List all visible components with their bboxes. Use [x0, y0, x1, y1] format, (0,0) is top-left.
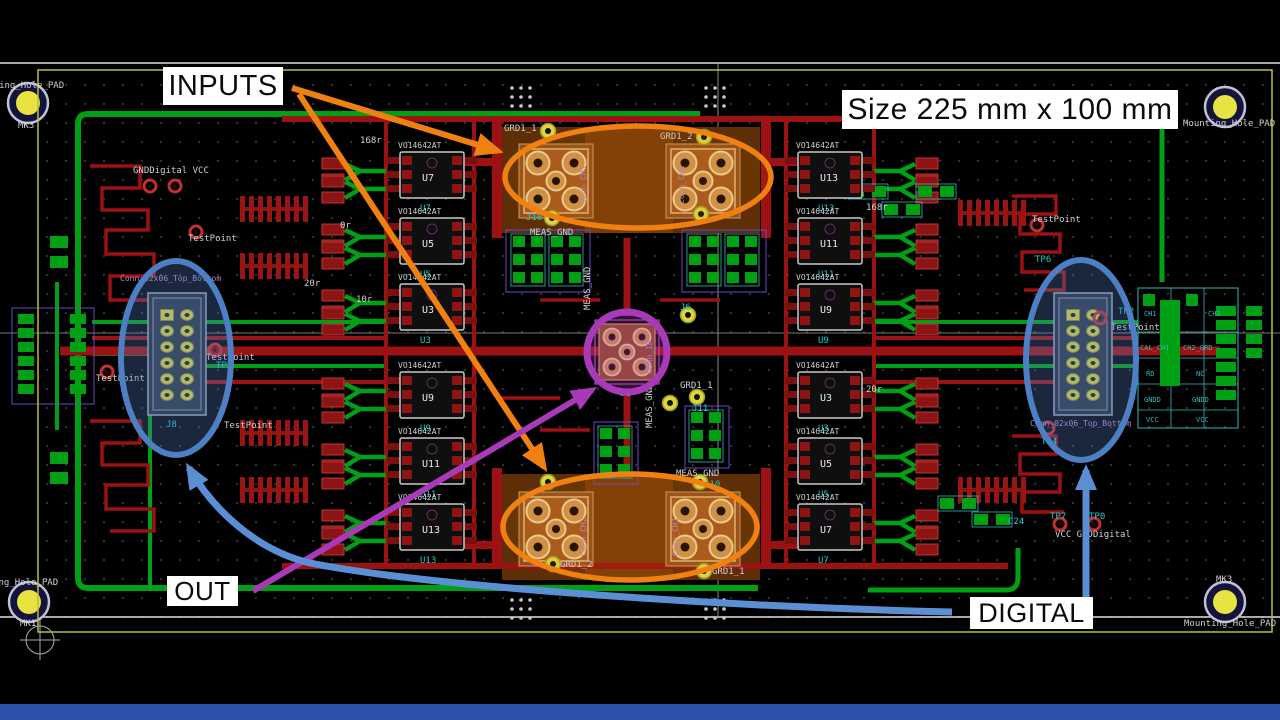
mount-label-tl: Mounting_Hole_PAD — [0, 81, 64, 91]
rb-r5c1: VCC — [1146, 416, 1159, 424]
annotation-label-inputs: INPUTS — [163, 67, 283, 105]
ic-part: VO14642AT — [796, 207, 840, 216]
value-2: 0r — [340, 221, 351, 231]
mount-ref-br: MK3 — [1216, 575, 1232, 585]
ic-part: VO14642AT — [796, 493, 840, 502]
ic-part: VO14642AT — [796, 361, 840, 370]
j6-ref: J6 — [680, 303, 691, 313]
ic-part: VO14642AT — [398, 427, 442, 436]
digital-highlight-ellipse-right — [1026, 260, 1136, 460]
mount-ref-tl: MK3 — [18, 121, 34, 131]
tp0-ref: TP0 — [1089, 512, 1105, 522]
ic-ref: U3 — [422, 305, 434, 316]
rb-r1c2: CH2 — [1208, 310, 1221, 318]
annotation-label-out: OUT — [167, 576, 238, 606]
mounting-hole-bottom-left — [9, 582, 49, 622]
mount-label-br: Mounting_Hole_PAD — [1184, 619, 1276, 629]
ic-ref: U7 — [422, 173, 434, 184]
mounting-hole-bottom-right — [1205, 582, 1245, 622]
tp7-ref: TP7 — [1050, 512, 1066, 522]
ic-part: VO14642AT — [796, 141, 840, 150]
ic-ref: U9 — [820, 305, 832, 316]
value-4: 10r — [356, 295, 373, 305]
measgnd-vert-2: MEAS_GND — [645, 385, 655, 428]
ic-ref: U3 — [820, 393, 832, 404]
value-6: 20r — [866, 385, 883, 395]
value-1: 168r — [360, 136, 382, 146]
grd11-top: GRD1_1 — [504, 124, 537, 134]
power-label-top-left: GNDDigital VCC — [133, 166, 209, 176]
testpoint-6: TestPoint — [1032, 215, 1081, 225]
rb-r3c1: RD — [1146, 370, 1154, 378]
mount-label-tr: Mounting_Hole_PAD — [1183, 119, 1275, 129]
ic-ref: U11 — [422, 459, 440, 470]
j11-ref: J11 — [692, 404, 708, 414]
annotation-label-size: Size 225 mm x 100 mm — [842, 90, 1178, 129]
grd11-mid: GRD1_1 — [680, 381, 713, 391]
measgnd-vert-1: MEAS_GND — [583, 267, 593, 310]
ic-ref: U13 — [820, 173, 838, 184]
measgnd-top: MEAS_GND — [530, 228, 573, 238]
bottom-strip — [0, 704, 1280, 720]
rb-r4c2: GNDD — [1192, 396, 1209, 404]
inputs-highlight-ellipse-bottom — [503, 474, 757, 580]
ic-ref-silk: U13 — [420, 556, 436, 566]
ic-part: VO14642AT — [398, 361, 442, 370]
inputs-highlight-ellipse-top — [505, 126, 771, 228]
rb-r4c1: NC — [1196, 370, 1204, 378]
out-highlight-circle — [587, 312, 667, 392]
ic-ref: U13 — [422, 525, 440, 536]
ic-ref: U7 — [820, 525, 832, 536]
ic-ref: U9 — [422, 393, 434, 404]
ic-ref: U5 — [820, 459, 832, 470]
ic-part: VO14642AT — [398, 207, 442, 216]
rb-r1c1: CH1 — [1144, 310, 1157, 318]
c24-ref: C24 — [1008, 517, 1024, 527]
testpoint-1: TestPoint — [188, 234, 237, 244]
ic-part: VO14642AT — [796, 273, 840, 282]
rb-r2c1: CAL_CH1 — [1140, 344, 1170, 352]
rb-r2c2: CH2_GRD — [1183, 344, 1213, 352]
digital-highlight-ellipse-left — [121, 261, 231, 455]
ic-ref-silk: U3 — [420, 336, 431, 346]
ic-ref-silk: U7 — [818, 556, 829, 566]
ic-ref: U5 — [422, 239, 434, 250]
ic-part: VO14642AT — [398, 141, 442, 150]
tp6-ref: TP6 — [1035, 255, 1051, 265]
ic-ref-silk: U9 — [818, 336, 829, 346]
j10-ref-top: J10 — [526, 213, 542, 223]
value-3: 20r — [304, 279, 321, 289]
rb-r5c2: VCC — [1196, 416, 1209, 424]
ic-ref: U11 — [820, 239, 838, 250]
mount-ref-bl: MK1 — [20, 619, 36, 629]
power-label-bottom-right: VCC GNDDigital — [1055, 530, 1131, 540]
annotation-label-digital: DIGITAL — [970, 597, 1093, 629]
value-5: 168r — [866, 203, 888, 213]
mount-label-bl: Mounting_Hole_PAD — [0, 578, 58, 588]
rb-r4c1b: GNDD — [1144, 396, 1161, 404]
testpoint-4: TestPoint — [224, 421, 273, 431]
screenshot-root: Mounting_Hole_PAD MK3 Mounting_Hole_PAD … — [0, 0, 1280, 720]
ic-part: VO14642AT — [796, 427, 840, 436]
